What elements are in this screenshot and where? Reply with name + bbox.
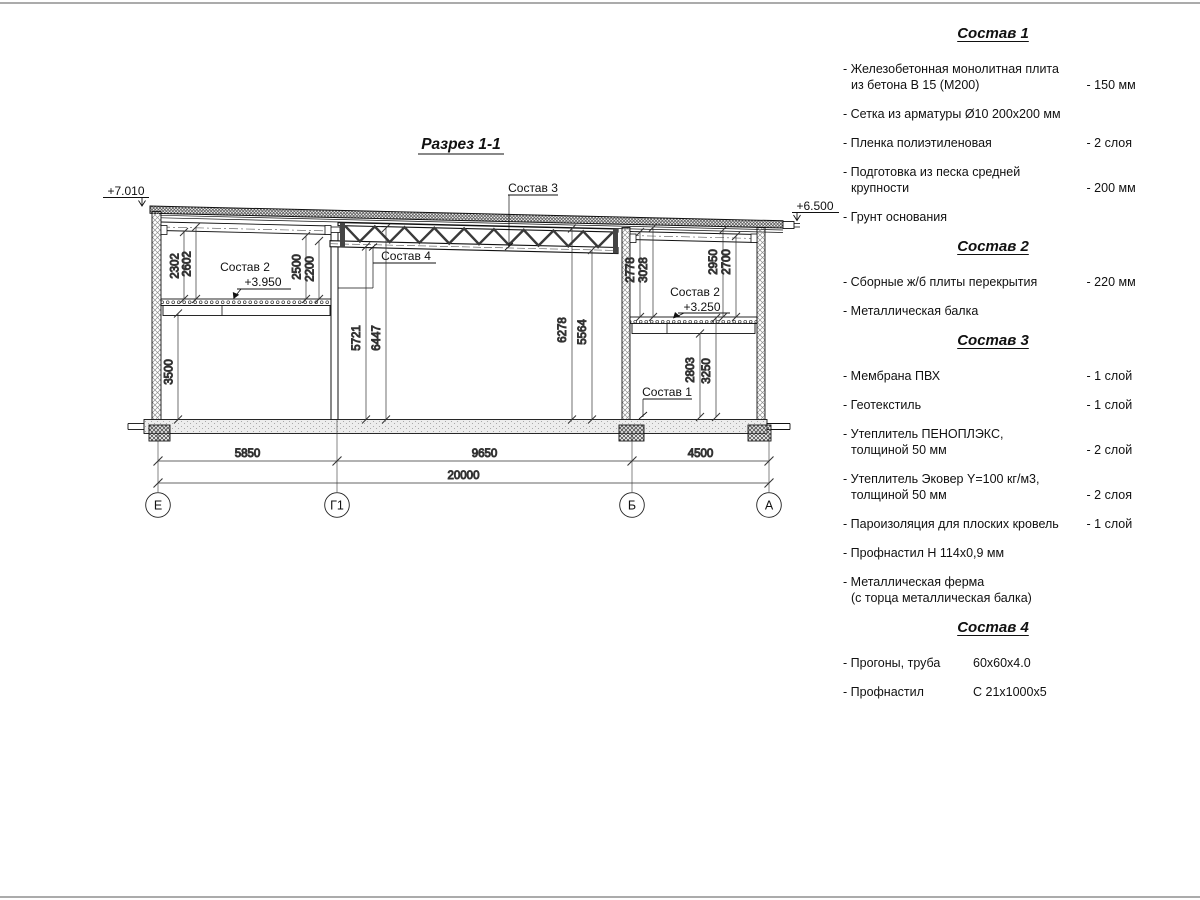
axis-label-e: Е [154,499,162,513]
axis-label-a: А [765,499,774,513]
legend-item-value: - 2 слоя [1087,487,1143,503]
legend-item: - Утеплитель Эковер Y=100 кг/м3, толщино… [843,471,1143,503]
section-title-text: Разрез 1-1 [421,136,501,153]
legend-item-name: - Сетка из арматуры Ø10 200х200 мм [843,106,1087,122]
dim-bay2: 9650 [472,448,498,460]
legend-item-value: - 220 мм [1087,274,1143,290]
callout-sostav2-left-text: Состав 2 [220,260,270,274]
foundation-pad [748,425,771,441]
drawing-title: Разрез 1-1 [418,136,504,154]
legend-item: - Сетка из арматуры Ø10 200х200 мм [843,106,1143,122]
legend-item-value: - 150 мм [1087,77,1143,93]
legend-section-title: Состав 4 [843,619,1143,637]
right-bay-ceiling [630,232,757,243]
legend-item: - Пароизоляция для плоских кровель - 1 с… [843,516,1143,532]
legend-item-name: - Грунт основания [843,209,1087,225]
dim-2200: 2200 [305,256,317,282]
drawing-sheet: Разрез 1-1 [0,0,1200,900]
legend-item-name: - Профнастил Н 114х0,9 мм [843,545,1087,561]
ground-floor-slab [128,420,790,442]
legend-item: - Геотекстиль - 1 слой [843,397,1143,413]
dim-3500: 3500 [164,359,176,385]
dim-3028: 3028 [638,257,650,283]
legend-item-name: - Прогоны, труба [843,655,973,671]
callout-sostav1-text: Состав 1 [642,385,692,399]
legend-item: - Подготовка из песка средней крупности … [843,164,1143,196]
dim-2602: 2602 [182,251,194,277]
callout-sostav-4: Состав 4 [338,244,436,289]
dim-6278: 6278 [557,317,569,343]
legend-section-title: Состав 1 [843,25,1143,43]
level-left-text: +3.950 [244,275,281,289]
legend-item-name: - Мембрана ПВХ [843,368,1087,384]
callout-sostav2-right-text: Состав 2 [670,285,720,299]
axis-bubbles: Е Г1 Б А [146,493,782,518]
legend-item-value: - 1 слой [1087,397,1143,413]
dim-6447: 6447 [371,325,383,351]
legend-item-name: - Металлическая ферма (с торца металличе… [843,574,1087,606]
legend-item: - Пленка полиэтиленовая - 2 слоя [843,135,1143,151]
legend-item: - Утеплитель ПЕНОПЛЭКС, толщиной 50 мм -… [843,426,1143,458]
roof-end-cap [783,222,794,229]
sheet-bottom-border [0,896,1200,898]
left-bay-ceiling [161,222,331,235]
legend-item-name: - Пароизоляция для плоских кровель [843,516,1087,532]
elevation-right-text: +6.500 [796,199,833,213]
elevation-mark-left: +7.010 [103,184,149,206]
axis-label-b: Б [628,499,636,513]
legend-item-value: 60х60х4.0 [973,655,1031,671]
legend-item-value: С 21х1000х5 [973,684,1047,700]
wall-axis-a [757,228,765,421]
legend-section-title: Состав 2 [843,238,1143,256]
elevation-mark-right: +6.500 [792,199,839,221]
legend-item-value: - 200 мм [1087,180,1143,196]
legend-item: - Металлическая ферма (с торца металличе… [843,574,1143,606]
legend-item-value: - 2 слой [1087,442,1143,458]
callout-sostav-2-right: Состав 2 +3.250 [670,285,730,319]
section-drawing: Разрез 1-1 [0,0,840,560]
legend-section-title: Состав 3 [843,332,1143,350]
level-right-text: +3.250 [683,300,720,314]
legend-item: - Металлическая балка [843,303,1143,319]
dim-5564: 5564 [577,319,589,345]
elevation-left-text: +7.010 [107,184,144,198]
materials-legend: Состав 1 - Железобетонная монолитная пли… [843,25,1143,713]
legend-item-name: - Геотекстиль [843,397,1087,413]
legend-title-text: Состав 2 [957,238,1029,255]
legend-item-name: - Пленка полиэтиленовая [843,135,1087,151]
callout-sostav3-text: Состав 3 [508,181,558,195]
legend-item: - Железобетонная монолитная плита из бет… [843,61,1143,93]
legend-item: - Профнастил Н 114х0,9 мм [843,545,1143,561]
axis-label-g1: Г1 [330,499,344,513]
legend-title-text: Состав 1 [957,25,1029,42]
legend-item-value: - 2 слоя [1087,135,1143,151]
legend-item: - Прогоны, труба 60х60х4.0 [843,655,1143,671]
legend-item-name: - Металлическая балка [843,303,1087,319]
wall-axis-g1 [327,227,340,420]
left-mezzanine-slab [161,299,331,316]
legend-item: - Сборные ж/б плиты перекрытия - 220 мм [843,274,1143,290]
dim-5721: 5721 [351,325,363,351]
dim-2700: 2700 [721,249,733,275]
legend-item-name: - Профнастил [843,684,973,700]
foundation-pad [149,425,170,441]
legend-item-value: - 1 слой [1087,516,1143,532]
legend-item-name: - Сборные ж/б плиты перекрытия [843,274,1087,290]
right-mezzanine-slab [630,317,757,334]
dim-2950: 2950 [708,249,720,275]
foundation-pad [619,425,644,441]
callout-sostav4-text: Состав 4 [381,249,431,263]
legend-item-name: - Утеплитель Эковер Y=100 кг/м3, толщино… [843,471,1087,503]
dim-total: 20000 [448,470,480,482]
dim-2778: 2778 [625,257,637,283]
wall-axis-e [152,212,161,421]
legend-title-text: Состав 4 [957,619,1029,636]
legend-title-text: Состав 3 [957,332,1029,349]
dim-bay3: 4500 [688,448,714,460]
legend-item-name: - Подготовка из песка средней крупности [843,164,1087,196]
legend-item: - Профнастил С 21х1000х5 [843,684,1143,700]
wall-axis-b [622,228,630,421]
dim-2500: 2500 [292,254,304,280]
dim-2302: 2302 [170,253,182,279]
legend-item-name: - Железобетонная монолитная плита из бет… [843,61,1087,93]
callout-sostav-2-left: Состав 2 +3.950 [220,260,291,299]
legend-item-value: - 1 слой [1087,368,1143,384]
legend-item-name: - Утеплитель ПЕНОПЛЭКС, толщиной 50 мм [843,426,1087,458]
dim-2803: 2803 [685,357,697,383]
legend-item: - Грунт основания [843,209,1143,225]
dim-bay1: 5850 [235,448,261,460]
callout-sostav-1: Состав 1 [639,385,692,419]
legend-item: - Мембрана ПВХ - 1 слой [843,368,1143,384]
dim-3250: 3250 [701,358,713,384]
